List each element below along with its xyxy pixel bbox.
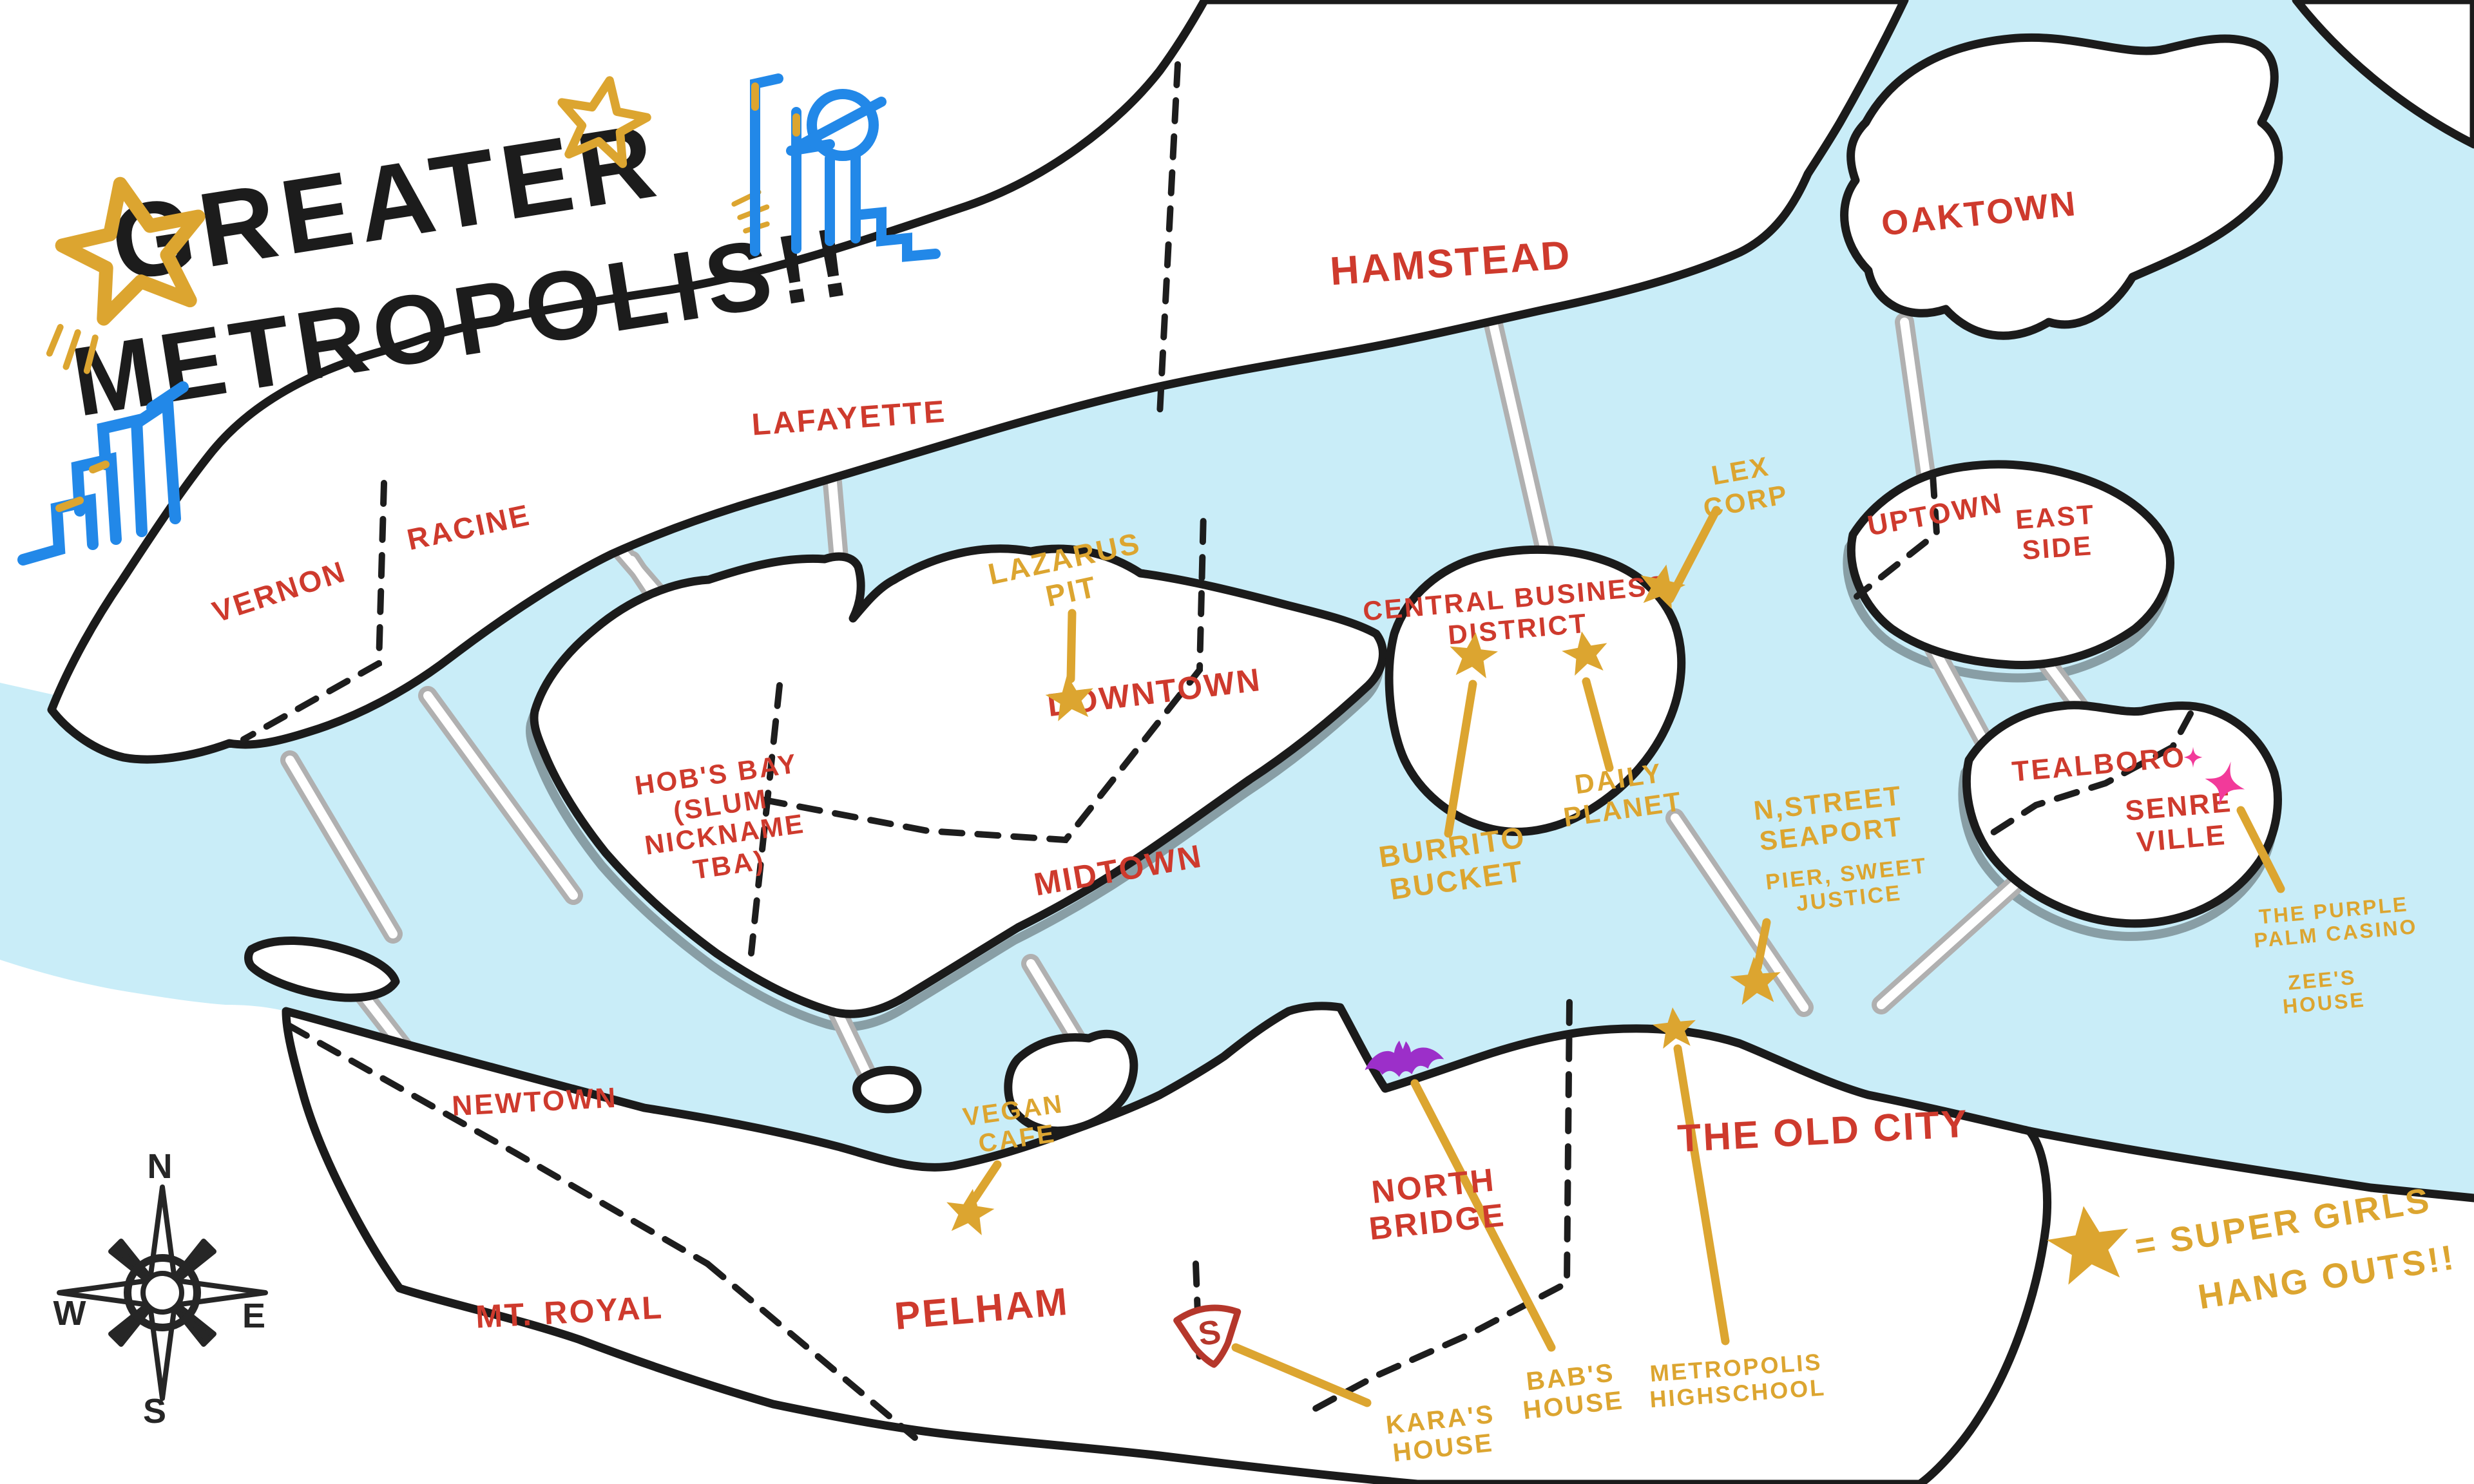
- zees-house-label: ZEE'SHOUSE: [2280, 967, 2367, 1020]
- islet-small: [857, 1070, 917, 1108]
- skyline-doodle-right-icon: [734, 58, 941, 290]
- skyline-doodle-left-icon: [15, 354, 222, 579]
- karas-house-label: KARA'SHOUSE: [1385, 1401, 1499, 1470]
- compass-rose-icon: [40, 1170, 285, 1422]
- superman-shield-icon: S: [1166, 1289, 1254, 1382]
- hangout-star-metropolis-highschool-icon: [1649, 1004, 1701, 1060]
- greater-metropolis-map: GREATER METROPOLIS!! = SUPER GIRLS HANG …: [0, 0, 2474, 1484]
- east-side-label-text: EAST: [2015, 500, 2096, 537]
- bat-icon: [1356, 1031, 1452, 1100]
- hangout-star-burrito-bucket-icon: [1444, 628, 1502, 691]
- legend-star-icon: [2040, 1197, 2140, 1307]
- hobs-bay-label: HOB'S BAY(SLUMNICKNAMETBA): [633, 749, 813, 892]
- babs-house-label: BAB'SHOUSE: [1519, 1358, 1625, 1427]
- senreville-sparkle-small-icon: [2180, 745, 2206, 773]
- hangout-star-vegan-cafe-icon: [939, 1184, 999, 1248]
- east-side-label: EASTSIDE: [2015, 500, 2098, 566]
- north-bridge-label: NORTHBRIDGE: [1363, 1161, 1507, 1248]
- east-side-label-text: SIDE: [2017, 531, 2098, 567]
- hangout-star-daily-planet-icon: [1557, 625, 1615, 688]
- hangout-star-lazarus-pit-icon: [1041, 670, 1100, 734]
- title-star-small-icon: [541, 63, 662, 187]
- hangout-star-seaport-icon: [1727, 953, 1786, 1018]
- pointer-lazarus-pit: [1071, 613, 1072, 679]
